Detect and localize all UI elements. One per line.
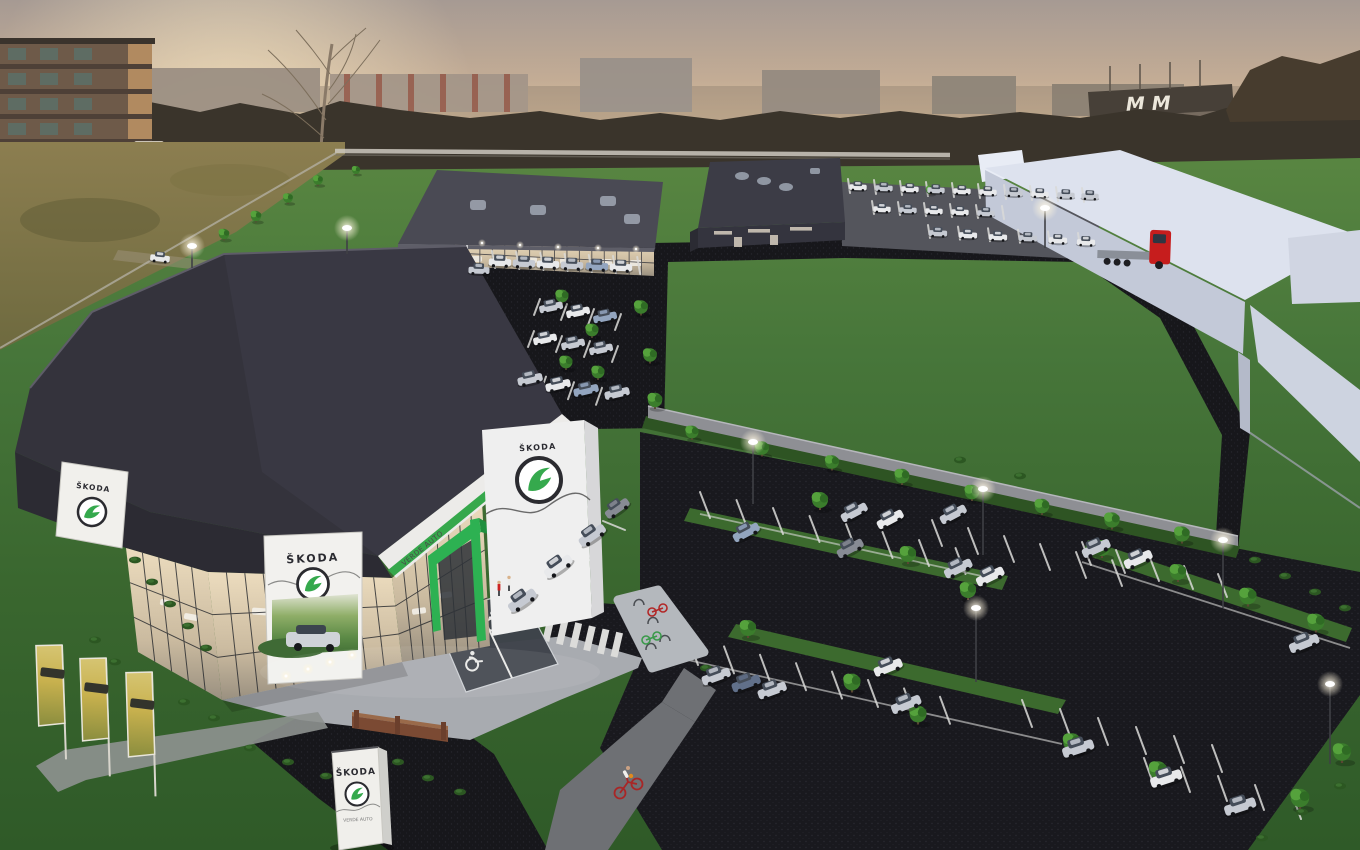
bush — [1014, 473, 1026, 480]
bush — [182, 623, 194, 630]
bush — [454, 789, 466, 796]
billboard-brand-text: ŠKODA — [286, 551, 340, 567]
bush — [1256, 835, 1268, 842]
bush — [146, 579, 158, 586]
bush — [89, 637, 101, 644]
scene-canvas: MM — [0, 0, 1360, 850]
warehouse-b — [690, 158, 845, 252]
bush — [244, 745, 256, 752]
skoda-logo-icon — [298, 569, 329, 600]
bush — [164, 601, 176, 608]
bush — [200, 645, 212, 652]
warehouse-b-roof — [698, 158, 845, 228]
orange-backpack — [629, 774, 633, 778]
totem-sign: ŠKODA VERDE AUTO — [330, 747, 394, 850]
bush — [1279, 573, 1291, 580]
bush — [282, 759, 294, 766]
skoda-logo-icon — [345, 782, 369, 806]
dealership-aerial-rendering: MM — [0, 0, 1360, 850]
bush — [422, 775, 434, 782]
wall-sign: ŠKODA — [56, 462, 128, 548]
bush — [1339, 605, 1351, 612]
bush — [1334, 783, 1346, 790]
bush — [178, 699, 190, 706]
bush — [392, 759, 404, 766]
skoda-logo-icon — [516, 457, 563, 504]
bush — [109, 659, 121, 666]
bush — [1296, 809, 1308, 816]
bush — [1309, 589, 1321, 596]
bush — [129, 557, 141, 564]
bush — [954, 457, 966, 464]
bush — [208, 715, 220, 722]
bush — [1249, 557, 1261, 564]
bush — [320, 773, 332, 780]
